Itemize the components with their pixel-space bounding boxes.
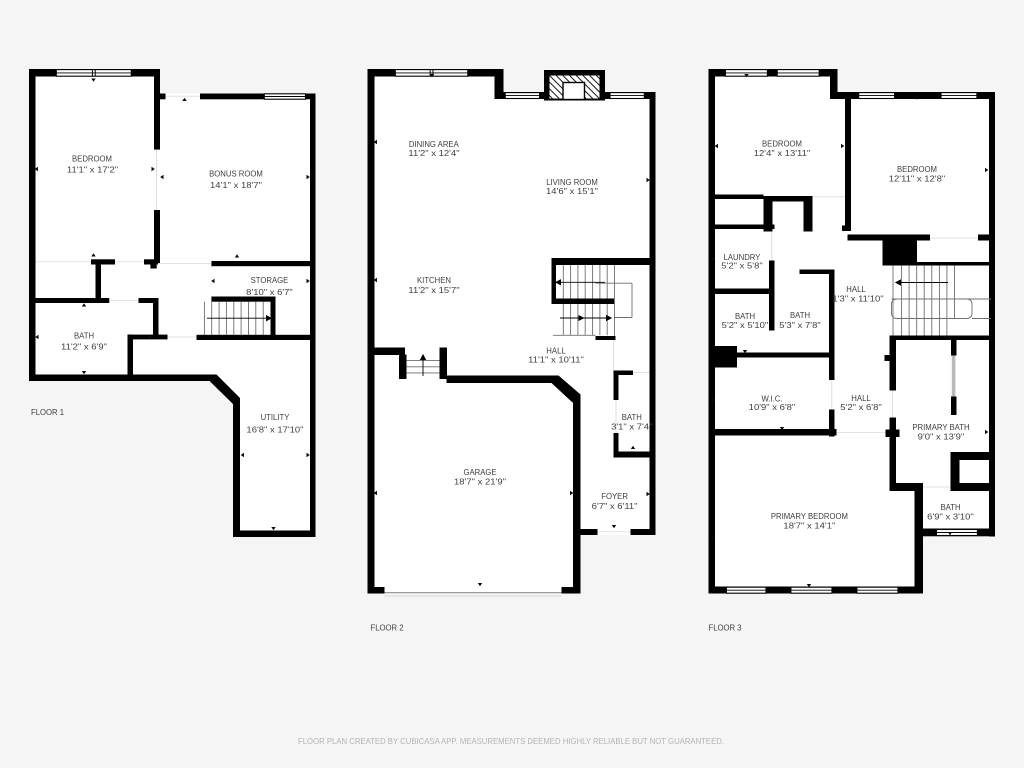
- svg-text:1'3" x 11'10": 1'3" x 11'10": [832, 294, 883, 304]
- svg-text:3'1" x 7'4": 3'1" x 7'4": [611, 422, 652, 432]
- svg-text:5'2" x 6'8": 5'2" x 6'8": [840, 402, 881, 412]
- svg-text:11'2" x 12'4": 11'2" x 12'4": [408, 148, 459, 158]
- svg-text:11'1" x 17'2": 11'1" x 17'2": [67, 165, 118, 175]
- svg-text:STORAGE: STORAGE: [251, 275, 289, 285]
- svg-text:5'2" x 5'8": 5'2" x 5'8": [721, 261, 762, 271]
- svg-text:BEDROOM: BEDROOM: [72, 153, 112, 163]
- svg-text:FOYER: FOYER: [601, 491, 628, 501]
- svg-text:12'4" x 13'11": 12'4" x 13'11": [754, 148, 810, 158]
- svg-text:11'2" x 15'7": 11'2" x 15'7": [408, 285, 459, 295]
- svg-text:FLOOR 2: FLOOR 2: [371, 623, 404, 633]
- svg-text:11'1" x 10'11": 11'1" x 10'11": [528, 354, 584, 364]
- svg-text:10'9" x 6'8": 10'9" x 6'8": [749, 402, 796, 412]
- svg-text:9'0" x 13'9": 9'0" x 13'9": [918, 432, 965, 442]
- svg-text:KITCHEN: KITCHEN: [417, 275, 451, 285]
- svg-text:BATH: BATH: [940, 502, 960, 512]
- svg-text:12'11" x 12'8": 12'11" x 12'8": [889, 174, 945, 184]
- svg-text:UTILITY: UTILITY: [261, 412, 290, 422]
- svg-text:8'10" x 6'7": 8'10" x 6'7": [246, 287, 293, 297]
- svg-text:18'7" x 14'1": 18'7" x 14'1": [783, 520, 835, 530]
- svg-text:BONUS ROOM: BONUS ROOM: [209, 168, 263, 178]
- svg-text:18'7" x 21'9": 18'7" x 21'9": [454, 477, 506, 487]
- svg-text:14'6" x 15'1": 14'6" x 15'1": [546, 186, 598, 196]
- svg-text:FLOOR PLAN CREATED BY CUBICASA: FLOOR PLAN CREATED BY CUBICASA APP. MEAS…: [298, 737, 724, 746]
- svg-text:6'7" x 6'11": 6'7" x 6'11": [592, 501, 638, 511]
- svg-text:FLOOR 3: FLOOR 3: [709, 623, 742, 633]
- svg-text:BATH: BATH: [790, 310, 810, 320]
- svg-text:BEDROOM: BEDROOM: [897, 164, 937, 174]
- svg-text:6'9" x 3'10": 6'9" x 3'10": [927, 512, 974, 522]
- svg-text:11'2" x 6'9": 11'2" x 6'9": [61, 342, 107, 352]
- svg-text:FLOOR 1: FLOOR 1: [31, 407, 64, 417]
- svg-text:14'1" x 18'7": 14'1" x 18'7": [210, 180, 262, 190]
- svg-text:HALL: HALL: [846, 284, 866, 294]
- svg-text:BATH: BATH: [74, 330, 94, 340]
- svg-text:5'3" x 7'8": 5'3" x 7'8": [779, 320, 820, 330]
- svg-text:16'8" x 17'10": 16'8" x 17'10": [246, 424, 303, 434]
- svg-text:BEDROOM: BEDROOM: [762, 138, 802, 148]
- svg-text:5'2" x 5'10": 5'2" x 5'10": [722, 320, 769, 330]
